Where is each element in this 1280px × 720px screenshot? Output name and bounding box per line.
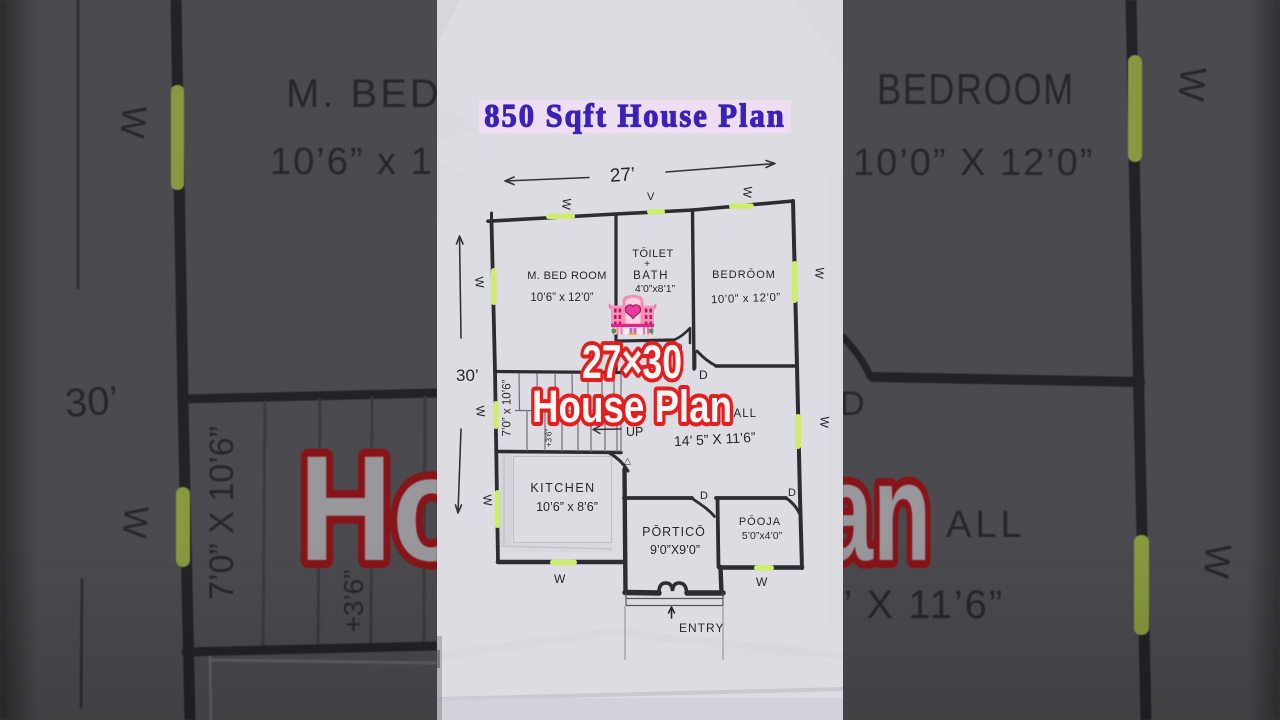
svg-text:House Plan: House Plan <box>532 381 732 432</box>
svg-text:W: W <box>472 276 487 289</box>
svg-text:W: W <box>756 575 768 589</box>
svg-text:5’0”x4’0”: 5’0”x4’0” <box>742 530 783 542</box>
svg-text:W: W <box>554 572 566 586</box>
svg-text:10’0” x 12’0”: 10’0” x 12’0” <box>711 292 781 306</box>
svg-text:TŌILET: TŌILET <box>632 248 674 260</box>
svg-text:30’: 30’ <box>456 366 479 385</box>
svg-text:W: W <box>812 267 827 280</box>
svg-text:KITCHEN: KITCHEN <box>530 481 595 495</box>
svg-text:△: △ <box>624 456 631 466</box>
svg-text:BEDRŌOM: BEDRŌOM <box>712 269 776 281</box>
svg-text:V: V <box>647 191 655 203</box>
svg-text:7’0” x 10’6”: 7’0” x 10’6” <box>502 379 514 436</box>
svg-text:4’0”x8’1”: 4’0”x8’1” <box>635 283 676 295</box>
svg-text:ENTRY: ENTRY <box>679 621 724 635</box>
svg-text:D: D <box>699 368 708 382</box>
svg-text:W: W <box>559 198 574 211</box>
svg-text:10’6” x 12’0”: 10’6” x 12’0” <box>530 292 593 304</box>
svg-text:10’6” x 8’6”: 10’6” x 8’6” <box>536 500 598 514</box>
svg-text:W: W <box>817 416 832 429</box>
svg-text:PŌOJA: PŌOJA <box>739 516 781 528</box>
svg-text:+: + <box>644 259 650 270</box>
svg-text:W: W <box>480 494 495 507</box>
svg-text:W: W <box>740 186 755 199</box>
svg-text:850 Sqft House Plan: 850 Sqft House Plan <box>484 98 785 134</box>
svg-text:M. BED ROOM: M. BED ROOM <box>527 270 607 282</box>
svg-text:W: W <box>473 405 488 418</box>
svg-text:PŌRTICŌ: PŌRTICŌ <box>642 525 706 539</box>
svg-text:27’: 27’ <box>609 164 636 187</box>
svg-text:D: D <box>788 487 796 499</box>
svg-text:D: D <box>700 490 708 502</box>
svg-text:9’0”X9’0”: 9’0”X9’0” <box>650 543 700 557</box>
svg-text:BATH: BATH <box>633 270 669 282</box>
